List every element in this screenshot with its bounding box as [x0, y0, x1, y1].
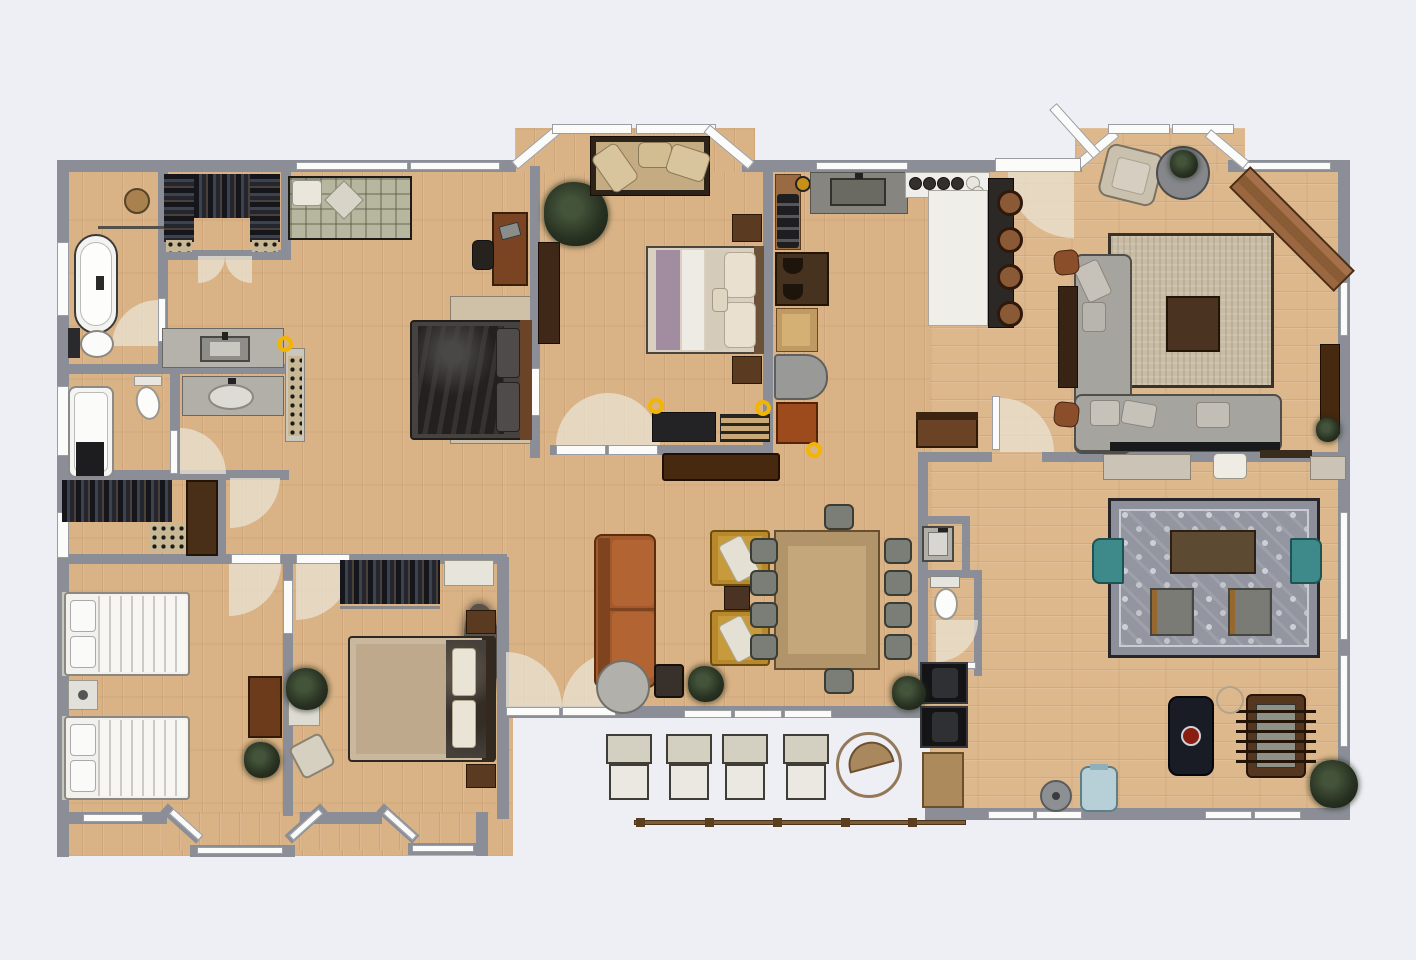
door-leaf-hallway[interactable]	[283, 580, 293, 634]
marker-light-kitchen[interactable]	[806, 442, 822, 458]
console-family-c[interactable]	[1310, 456, 1346, 480]
vanity2-sink	[208, 384, 254, 410]
kitchen-faucet	[855, 173, 863, 179]
master-bed-throw-pillow	[712, 288, 728, 312]
plant-bedroom4[interactable]	[286, 668, 328, 710]
door-leaf-patio-a[interactable]	[506, 707, 560, 716]
shower-fixture	[76, 442, 104, 476]
pantry-bowls	[777, 194, 799, 248]
powder-toilet-tank[interactable]	[930, 576, 960, 588]
chair-wood-gray-left[interactable]	[1150, 588, 1194, 636]
coffee-machine-a	[783, 258, 803, 274]
wardrobe-hall[interactable]	[186, 480, 218, 556]
dining-chair-l3[interactable]	[750, 602, 778, 628]
dresser-bedroom4[interactable]	[444, 560, 494, 586]
window-bottom-left-a[interactable]	[83, 814, 143, 822]
armchair-teal-right[interactable]	[1290, 538, 1322, 584]
window-master-bay-1[interactable]	[552, 124, 632, 134]
bed-twin2-duvet	[98, 720, 186, 796]
window-right-1[interactable]	[1340, 282, 1348, 336]
toilet1-bowl[interactable]	[80, 330, 114, 358]
nightstand-queen-bottom[interactable]	[466, 764, 496, 788]
kitchen-sink	[830, 178, 886, 206]
vanity1-basin	[210, 342, 240, 356]
marker-light-vanity[interactable]	[277, 336, 293, 352]
sideboard-behind-sofa[interactable]	[1058, 286, 1078, 388]
window-right-3[interactable]	[1340, 655, 1348, 747]
foosball-rod-1	[1236, 710, 1316, 713]
railing-post-2	[705, 818, 714, 827]
closet1-clothes-right[interactable]	[250, 174, 280, 242]
wicker-tray[interactable]	[1216, 686, 1244, 714]
wall-family-top-a	[918, 452, 992, 462]
sofa-leather-back	[598, 538, 610, 684]
dining-chair-top[interactable]	[824, 504, 854, 530]
lounger-3-back[interactable]	[722, 734, 768, 764]
lounger-4-back[interactable]	[783, 734, 829, 764]
foosball-rod-2	[1236, 720, 1316, 723]
tub-faucet	[96, 276, 104, 290]
closet1-clothes-left[interactable]	[164, 174, 194, 242]
cabinet-game-room[interactable]	[922, 752, 964, 808]
vanity2-faucet	[228, 378, 236, 384]
marker-light-master-a[interactable]	[648, 398, 664, 414]
powder-toilet-bowl[interactable]	[934, 588, 958, 620]
marker-light-master-b[interactable]	[755, 400, 771, 416]
window-game-3[interactable]	[1205, 811, 1252, 819]
master-bed-blanket-mauve	[656, 250, 680, 350]
sofa-leather-seam	[606, 608, 654, 611]
bed-twin1-pillow-b	[70, 636, 96, 668]
railing-post-5	[908, 818, 917, 827]
dining-chair-r2[interactable]	[884, 570, 912, 596]
lounger-4-seat	[786, 764, 826, 800]
window-left-1[interactable]	[57, 242, 69, 316]
foosball-rod-4	[1236, 740, 1316, 743]
burner-1	[909, 177, 922, 190]
toilet1-tank[interactable]	[68, 328, 80, 358]
door-leaf-master-b[interactable]	[608, 445, 658, 455]
hall-closet-shoes	[150, 524, 190, 552]
nightstand-twin-lamp	[78, 690, 88, 700]
floor-plan-canvas	[0, 0, 1416, 960]
console-family-a[interactable]	[1103, 454, 1191, 480]
sofa-leather-cushion-a	[612, 540, 654, 606]
sectional-pillow-e	[1196, 402, 1230, 428]
nightstand-master-top[interactable]	[732, 214, 762, 242]
door-leaf-bath2[interactable]	[170, 430, 178, 474]
lounger-2-seat	[669, 764, 709, 800]
bar-stool-3[interactable]	[997, 264, 1023, 290]
rug-family-room[interactable]	[1108, 498, 1320, 658]
kitchen-island[interactable]	[928, 190, 988, 326]
dining-chair-l2[interactable]	[750, 570, 778, 596]
window-bay2-bottom[interactable]	[412, 845, 474, 852]
lounger-1-seat	[609, 764, 649, 800]
window-game-2[interactable]	[1036, 811, 1082, 819]
window-bay1-bottom[interactable]	[197, 847, 283, 854]
lounger-1-back[interactable]	[606, 734, 652, 764]
closet1-shoes-right	[252, 240, 278, 252]
closet-rod-bar	[340, 606, 440, 609]
cabinet-tan-inner	[782, 314, 810, 346]
window-top-1[interactable]	[296, 162, 408, 170]
cooler-bin[interactable]	[1080, 766, 1118, 812]
window-kitchen[interactable]	[816, 162, 908, 170]
wall-powder-sink-right	[962, 516, 970, 578]
door-frame-entry[interactable]	[995, 158, 1081, 172]
window-game-4[interactable]	[1254, 811, 1301, 819]
plant-on-table[interactable]	[1170, 150, 1198, 178]
washer-door	[932, 668, 958, 698]
dining-chair-bottom[interactable]	[824, 668, 854, 694]
plant-game-corner[interactable]	[1310, 760, 1358, 808]
railing-post-3	[773, 818, 782, 827]
cabinet-orange[interactable]	[776, 402, 818, 444]
closet-rod-bedroom4[interactable]	[340, 560, 440, 604]
slat-bench-master[interactable]	[720, 414, 770, 442]
door-leaf-bedroom3[interactable]	[231, 554, 281, 564]
window-patio-1[interactable]	[684, 710, 732, 718]
dining-table-top	[788, 546, 866, 654]
sectional-pillow-b	[1082, 302, 1106, 332]
powder-faucet	[938, 528, 948, 532]
master-bed-pillow-a	[724, 252, 756, 298]
armchair-teal-left[interactable]	[1092, 538, 1124, 584]
desk-bedroom3[interactable]	[248, 676, 282, 738]
dryer-door	[932, 712, 958, 742]
bed-queen-blanket	[356, 644, 448, 754]
bed1-pillow-a	[496, 328, 520, 378]
storage-trunk-hall[interactable]	[662, 453, 780, 481]
dining-chair-r1[interactable]	[884, 538, 912, 564]
bed-twin2-pillow-a	[70, 724, 96, 756]
bed1-headboard	[520, 320, 532, 440]
door-leaf-master-a[interactable]	[556, 445, 606, 455]
window-top-2[interactable]	[410, 162, 500, 170]
wall-bay2-right	[476, 812, 488, 856]
window-top-right[interactable]	[1243, 162, 1331, 170]
lounger-3-seat	[725, 764, 765, 800]
side-table-small[interactable]	[724, 586, 750, 610]
bed-twin2-pillow-b	[70, 760, 96, 792]
foosball-rod-6	[1236, 760, 1316, 763]
wall-dining-family-divider	[918, 452, 928, 676]
master-bed-pillow-b	[724, 302, 756, 348]
bar-stool-1[interactable]	[997, 190, 1023, 216]
dining-chair-r4[interactable]	[884, 634, 912, 660]
bar-stool-4[interactable]	[997, 301, 1023, 327]
decor-dish	[795, 176, 811, 192]
bed-twin1-duvet	[98, 596, 186, 672]
bed1-pillow-b	[496, 382, 520, 432]
cooler-lid	[1090, 764, 1108, 770]
burner-3	[937, 177, 950, 190]
window-patio-3[interactable]	[784, 710, 832, 718]
bed-twin1-pillow-a	[70, 600, 96, 632]
bar-stool-2[interactable]	[997, 227, 1023, 253]
wardrobe-master-wall[interactable]	[538, 242, 560, 344]
stool-living-top[interactable]	[1053, 249, 1080, 276]
burner-4	[951, 177, 964, 190]
plant-dining-left[interactable]	[688, 666, 724, 702]
air-hockey-logo	[1181, 726, 1201, 746]
plant-bedroom3[interactable]	[244, 742, 280, 778]
coffee-machine-b	[783, 284, 803, 300]
closet1-clothes-top[interactable]	[194, 174, 250, 218]
door-leaf-family[interactable]	[992, 396, 1000, 450]
railing-post-1	[636, 818, 645, 827]
dining-chair-r3[interactable]	[884, 602, 912, 628]
powder-basin	[928, 532, 948, 556]
dining-chair-l4[interactable]	[750, 634, 778, 660]
stool-dark-square[interactable]	[654, 664, 684, 698]
tv-family-wall[interactable]	[1110, 442, 1280, 451]
desk-chair-bedroom1[interactable]	[472, 240, 494, 270]
dining-chair-l1[interactable]	[750, 538, 778, 564]
bed-queen-pillow-b	[452, 700, 476, 748]
foosball-field	[1256, 704, 1296, 768]
shelf-decor	[288, 356, 302, 436]
window-right-2[interactable]	[1340, 512, 1348, 640]
chair-wood-gray-right[interactable]	[1228, 588, 1272, 636]
bed-queen-pillow-a	[452, 648, 476, 696]
media-shelf-family[interactable]	[1260, 450, 1312, 458]
foosball-rod-3	[1236, 730, 1316, 733]
window-living-bay-2[interactable]	[1172, 124, 1234, 134]
foosball-rod-5	[1236, 750, 1316, 753]
window-living-bay-1[interactable]	[1108, 124, 1170, 134]
nightstand-master-bottom[interactable]	[732, 356, 762, 384]
ottoman-round[interactable]	[596, 660, 650, 714]
coffee-table-family[interactable]	[1170, 530, 1256, 574]
hall-closet-clothes[interactable]	[62, 480, 172, 522]
closet1-shoes-left	[166, 240, 192, 252]
floor-fan-hub	[1052, 792, 1060, 800]
master-bed-blanket-white	[682, 250, 704, 350]
plant-dining-corner[interactable]	[892, 676, 926, 710]
window-game-1[interactable]	[988, 811, 1034, 819]
toilet2-tank[interactable]	[134, 376, 162, 386]
lounger-2-back[interactable]	[666, 734, 712, 764]
vanity1-faucet	[222, 332, 228, 340]
sectional-pillow-c	[1090, 400, 1120, 426]
coffee-table-living[interactable]	[1166, 296, 1220, 352]
sideboard-hallway-top	[916, 412, 978, 420]
console-family-b[interactable]	[1213, 453, 1247, 479]
tv-cabinet-master[interactable]	[652, 412, 716, 442]
fridge[interactable]	[774, 354, 828, 400]
stool-living-bottom[interactable]	[1053, 401, 1080, 428]
burner-2	[923, 177, 936, 190]
bed1-duvet	[418, 326, 504, 434]
nightstand-queen-top[interactable]	[466, 610, 496, 634]
vanity-mirror-table[interactable]	[124, 188, 150, 214]
plant-desk-right[interactable]	[1316, 418, 1340, 442]
daybed-pillow	[292, 180, 322, 206]
window-patio-2[interactable]	[734, 710, 782, 718]
railing-post-4	[841, 818, 850, 827]
